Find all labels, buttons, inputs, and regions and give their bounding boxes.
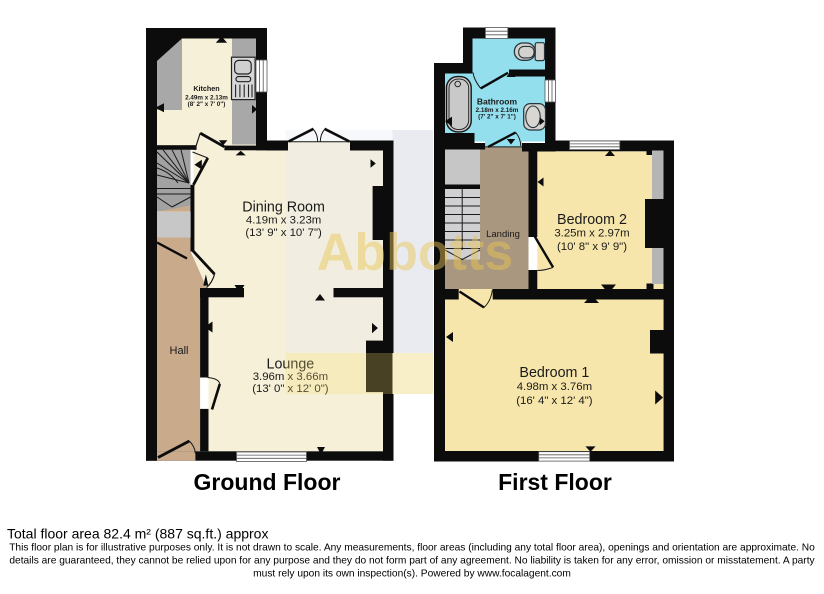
svg-text:Ground Floor: Ground Floor <box>194 469 341 495</box>
svg-text:Bathroom: Bathroom <box>477 97 518 107</box>
svg-text:(8' 2" x 7' 0"): (8' 2" x 7' 0") <box>188 101 226 108</box>
svg-text:(16' 4" x 12' 4"): (16' 4" x 12' 4") <box>516 395 593 407</box>
svg-text:Hall: Hall <box>170 345 189 357</box>
svg-text:must rely upon its own inspect: must rely upon its own inspection(s). Po… <box>253 569 571 580</box>
svg-text:Total floor area 82.4 m² (887: Total floor area 82.4 m² (887 sq.ft.) ap… <box>7 526 268 542</box>
svg-text:Dining Room: Dining Room <box>242 199 325 215</box>
svg-text:4.98m x 3.76m: 4.98m x 3.76m <box>517 381 592 393</box>
svg-text:Bedroom 2: Bedroom 2 <box>557 212 627 228</box>
svg-text:details are guaranteed, they c: details are guaranteed, they cannot be r… <box>9 556 815 567</box>
svg-text:Bedroom 1: Bedroom 1 <box>519 365 589 381</box>
svg-text:(7' 2" x 7' 1"): (7' 2" x 7' 1") <box>478 114 516 121</box>
svg-text:3.25m x 2.97m: 3.25m x 2.97m <box>554 228 629 240</box>
svg-text:First Floor: First Floor <box>498 469 612 495</box>
svg-text:This floor plan is for illustr: This floor plan is for illustrative purp… <box>9 543 815 554</box>
svg-text:Kitchen: Kitchen <box>193 84 219 93</box>
svg-text:Abbotts: Abbotts <box>317 224 513 282</box>
svg-text:(10' 8" x 9' 9"): (10' 8" x 9' 9") <box>557 241 627 253</box>
svg-text:4.19m x 3.23m: 4.19m x 3.23m <box>246 214 321 226</box>
svg-text:(13' 9" x 10' 7"): (13' 9" x 10' 7") <box>245 227 322 239</box>
